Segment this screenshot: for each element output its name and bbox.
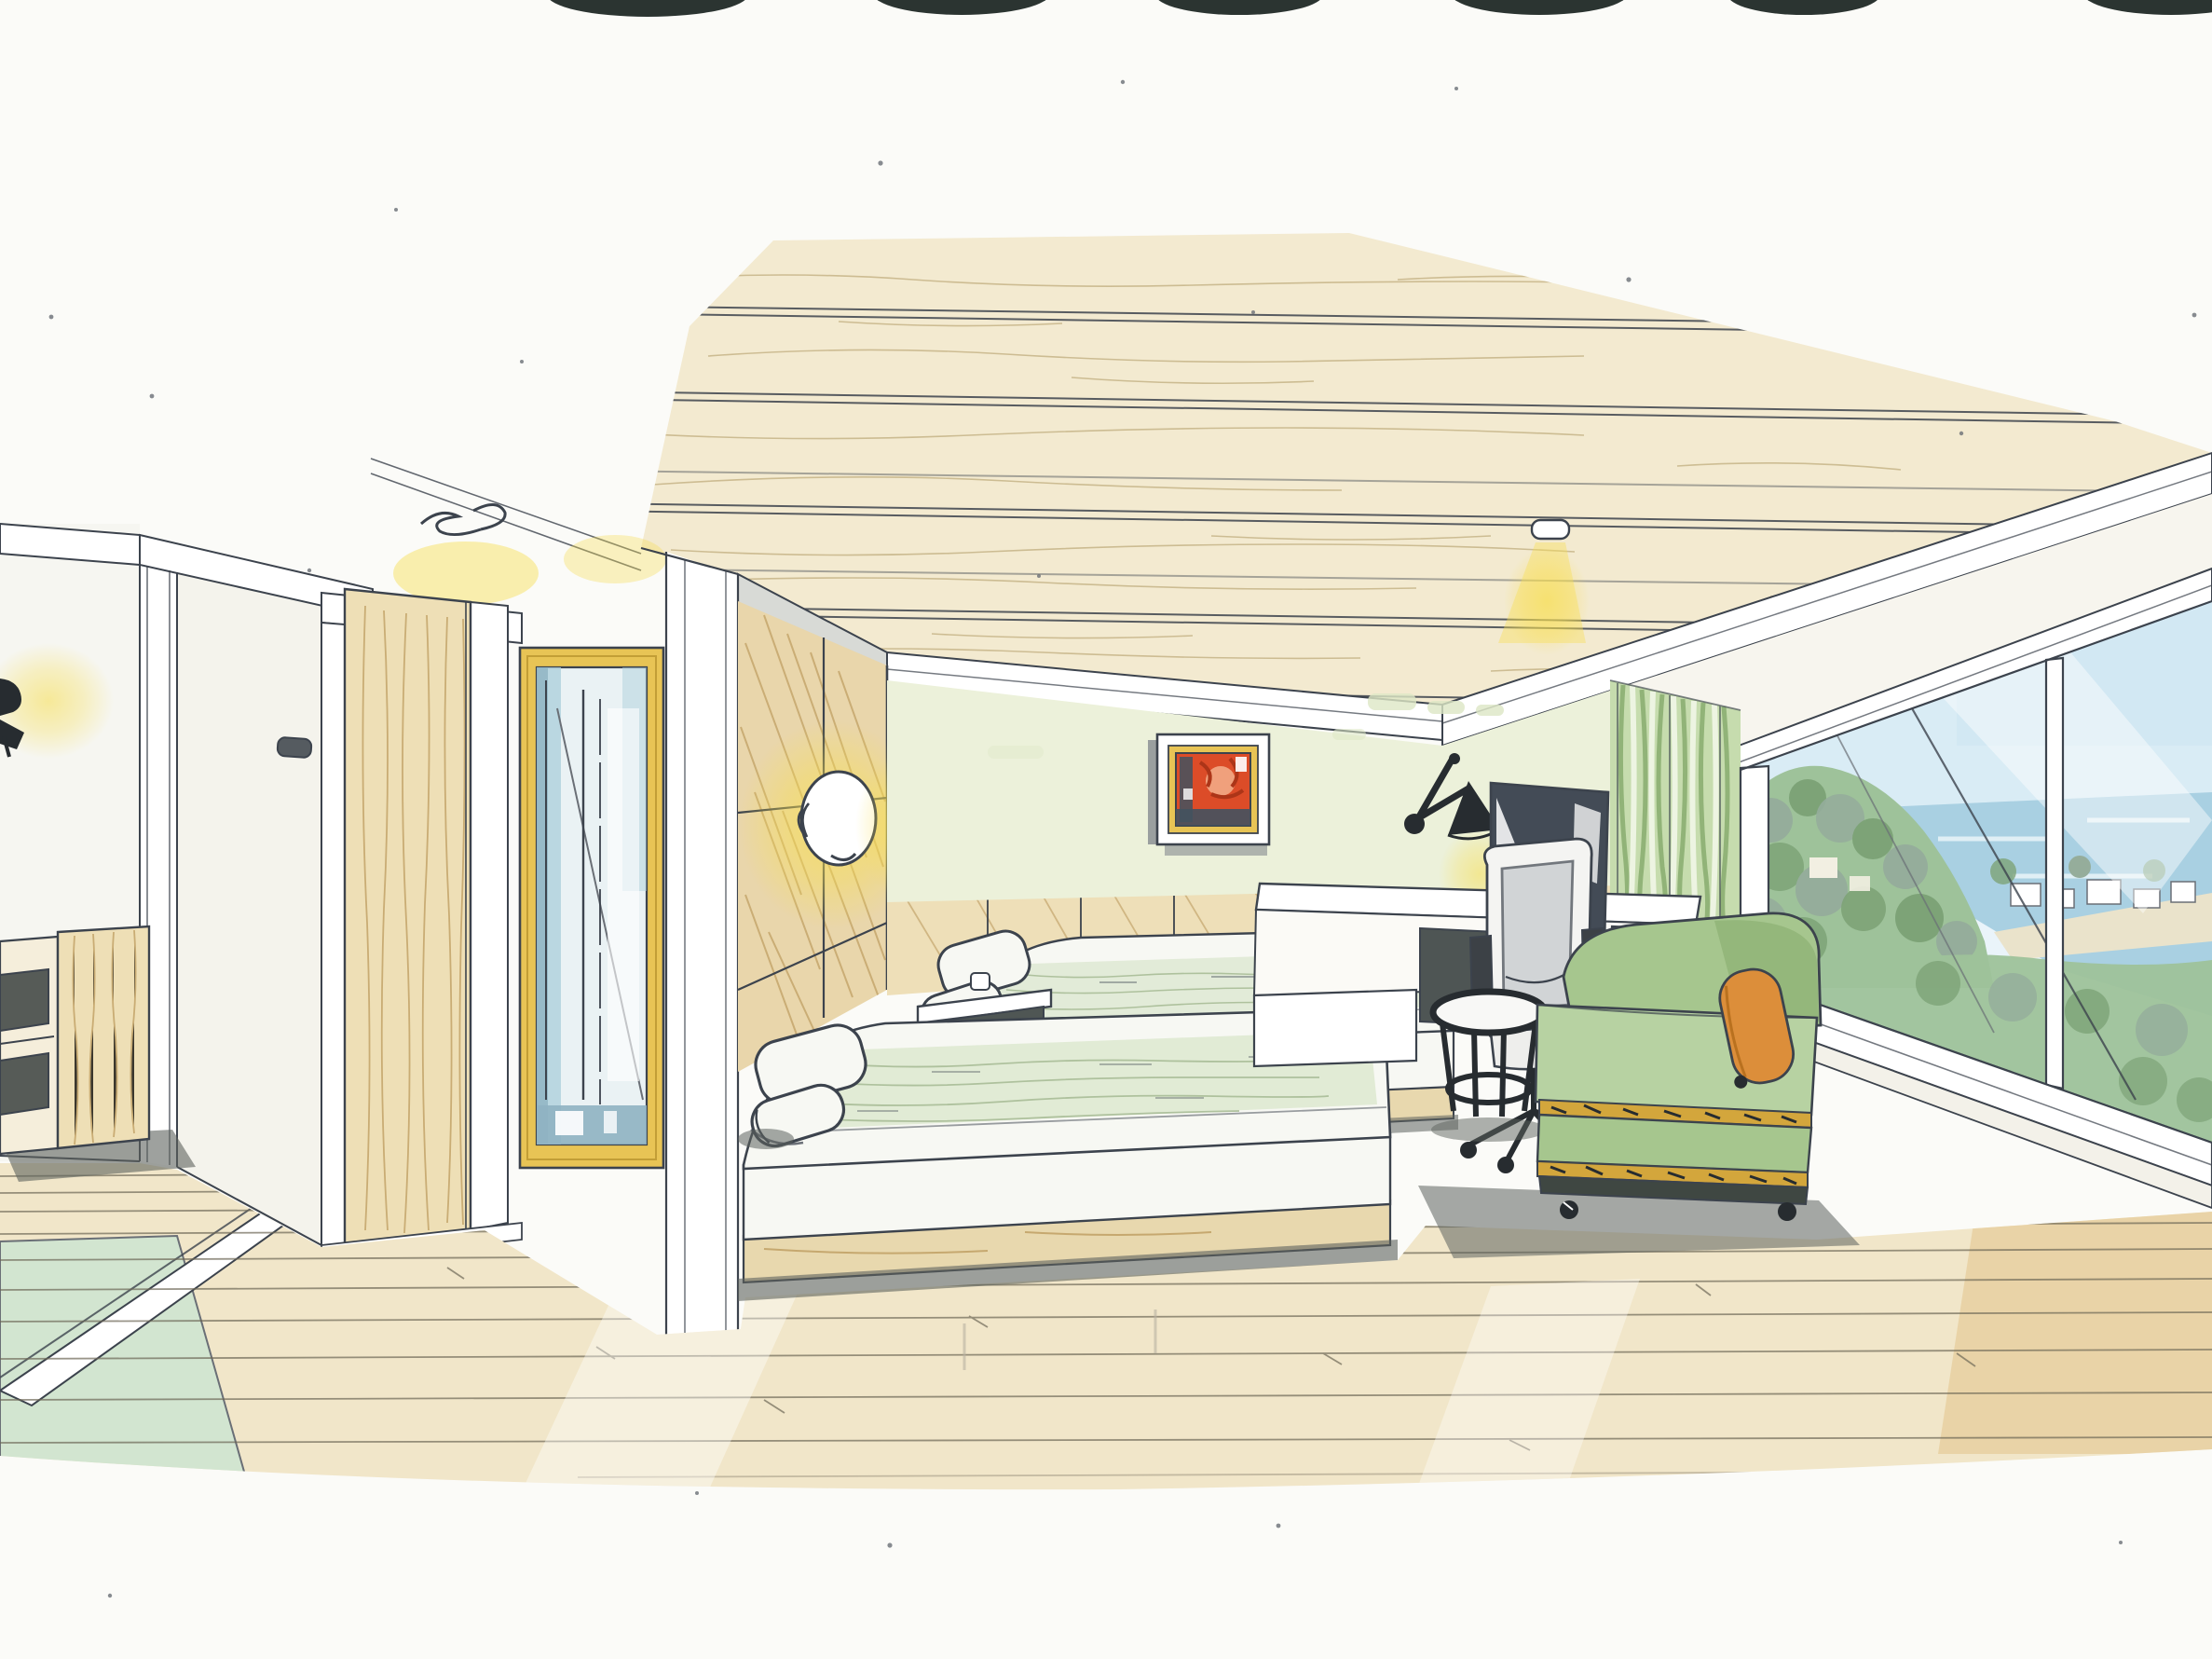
cabinet-niche-top (0, 969, 48, 1031)
door-handle-icon (277, 737, 311, 758)
mirror (520, 648, 663, 1168)
painting (1148, 734, 1269, 856)
interior-sketch (0, 0, 2212, 1659)
cabinet-niche-bottom (0, 1053, 48, 1115)
sketch-page (0, 0, 2212, 1659)
floor-warm-wash (1938, 1193, 2212, 1454)
cup-icon (971, 973, 990, 990)
